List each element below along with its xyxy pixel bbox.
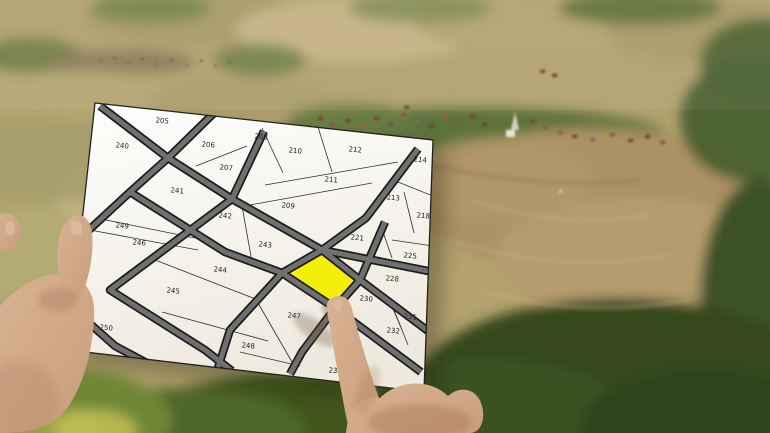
parcel-label-250: 250 <box>99 323 113 332</box>
parcel-label-218: 218 <box>416 211 430 220</box>
parcel-label-232: 232 <box>386 326 400 335</box>
parcel-label-208: 208 <box>254 132 268 141</box>
parcel-label-245: 245 <box>166 286 180 295</box>
parcel-label-241: 241 <box>170 186 184 195</box>
cadastral-map: 2052402062082072102122142112412132092422… <box>68 103 433 392</box>
parcel-label-214: 214 <box>413 155 428 164</box>
parcel-label-213: 213 <box>386 193 400 202</box>
parcel-label-209: 209 <box>281 201 295 210</box>
parcel-label-244: 244 <box>213 265 228 274</box>
photo-scene: 2052402062082072102122142112412132092422… <box>0 0 770 433</box>
parcel-label-206: 206 <box>201 140 216 149</box>
scene-svg: 2052402062082072102122142112412132092422… <box>0 0 770 433</box>
parcel-label-240: 240 <box>115 141 129 150</box>
parcel-label-230: 230 <box>359 294 373 303</box>
parcel-label-231: 231 <box>403 312 417 321</box>
parcel-label-225: 225 <box>403 251 417 260</box>
parcel-label-211: 211 <box>324 175 338 184</box>
parcel-label-210: 210 <box>288 146 302 155</box>
parcel-label-242: 242 <box>218 211 232 220</box>
parcel-label-205: 205 <box>155 116 169 125</box>
parcel-label-249: 249 <box>115 221 129 230</box>
parcel-label-207: 207 <box>219 163 233 172</box>
parcel-label-246: 246 <box>132 238 147 247</box>
parcel-label-228: 228 <box>385 274 399 283</box>
parcel-label-212: 212 <box>348 145 362 154</box>
parcel-label-221: 221 <box>350 233 364 242</box>
parcel-label-243: 243 <box>258 240 272 249</box>
parcel-label-248: 248 <box>241 341 255 350</box>
